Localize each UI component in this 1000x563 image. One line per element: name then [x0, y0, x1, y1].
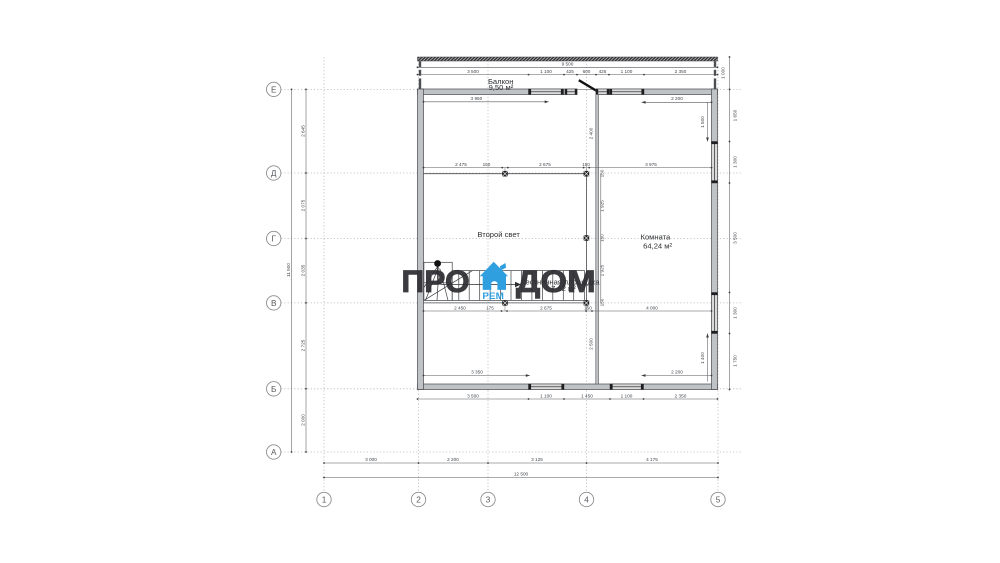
- svg-text:150: 150: [600, 234, 605, 242]
- svg-text:2 350: 2 350: [675, 393, 687, 398]
- svg-text:150: 150: [483, 162, 491, 167]
- svg-text:5: 5: [716, 496, 721, 505]
- svg-text:ПРО: ПРО: [401, 263, 469, 299]
- svg-text:А: А: [271, 448, 277, 457]
- svg-text:Г: Г: [271, 235, 276, 244]
- svg-text:425: 425: [599, 69, 607, 74]
- svg-text:1 450: 1 450: [581, 393, 593, 398]
- svg-text:2 725: 2 725: [300, 339, 305, 351]
- svg-text:Е: Е: [271, 85, 277, 94]
- svg-text:2 035: 2 035: [300, 264, 305, 276]
- svg-text:1 100: 1 100: [540, 393, 552, 398]
- svg-text:2 200: 2 200: [671, 96, 683, 101]
- svg-text:2 675: 2 675: [539, 162, 551, 167]
- svg-text:4 175: 4 175: [646, 457, 658, 462]
- svg-text:3 950: 3 950: [471, 96, 483, 101]
- svg-text:1 750: 1 750: [732, 355, 737, 367]
- svg-text:РЕМ: РЕМ: [482, 291, 504, 301]
- svg-text:2 475: 2 475: [455, 162, 467, 167]
- svg-text:Д: Д: [271, 169, 277, 178]
- svg-text:1 650: 1 650: [732, 109, 737, 121]
- svg-text:Комната: Комната: [641, 233, 672, 242]
- svg-text:2 000: 2 000: [300, 414, 305, 426]
- svg-text:3 500: 3 500: [467, 393, 479, 398]
- svg-text:11 500: 11 500: [286, 263, 291, 277]
- svg-text:1 000: 1 000: [720, 67, 725, 79]
- svg-text:Б: Б: [271, 385, 276, 394]
- svg-text:2 200: 2 200: [671, 370, 683, 375]
- svg-text:600: 600: [583, 69, 591, 74]
- svg-text:2: 2: [416, 496, 421, 505]
- svg-text:2 675: 2 675: [540, 305, 552, 310]
- svg-text:Второй свет: Второй свет: [477, 230, 520, 239]
- svg-text:175: 175: [486, 305, 494, 310]
- svg-text:2 500: 2 500: [588, 338, 593, 350]
- svg-text:2 200: 2 200: [447, 457, 459, 462]
- svg-text:4: 4: [584, 496, 589, 505]
- svg-text:2 075: 2 075: [300, 199, 305, 211]
- svg-text:1 100: 1 100: [540, 69, 552, 74]
- svg-text:3 350: 3 350: [471, 370, 483, 375]
- svg-text:1 100: 1 100: [621, 69, 633, 74]
- svg-text:ДОМ: ДОМ: [516, 263, 596, 299]
- svg-text:3 500: 3 500: [732, 232, 737, 244]
- svg-text:1 300: 1 300: [732, 156, 737, 168]
- svg-text:1 300: 1 300: [732, 307, 737, 319]
- svg-text:3: 3: [486, 496, 491, 505]
- svg-text:150: 150: [600, 298, 605, 306]
- svg-text:64,24 м²: 64,24 м²: [643, 241, 672, 250]
- svg-text:2 450: 2 450: [454, 305, 466, 310]
- svg-text:150: 150: [600, 169, 605, 177]
- svg-text:9,50 м²: 9,50 м²: [489, 83, 514, 92]
- svg-text:4 000: 4 000: [646, 305, 658, 310]
- svg-text:1 500: 1 500: [700, 116, 705, 128]
- svg-text:1 925: 1 925: [600, 264, 605, 276]
- svg-text:150: 150: [584, 305, 592, 310]
- svg-text:2 350: 2 350: [675, 69, 687, 74]
- svg-text:В: В: [271, 299, 277, 308]
- svg-text:3 125: 3 125: [531, 457, 543, 462]
- svg-text:150: 150: [582, 162, 590, 167]
- svg-text:3 975: 3 975: [645, 162, 657, 167]
- svg-text:2 645: 2 645: [300, 125, 305, 137]
- svg-text:9 500: 9 500: [562, 61, 574, 66]
- svg-text:1 100: 1 100: [621, 393, 633, 398]
- svg-text:1 400: 1 400: [700, 352, 705, 364]
- svg-text:1: 1: [322, 496, 327, 505]
- svg-text:1 925: 1 925: [600, 200, 605, 212]
- svg-text:12 500: 12 500: [514, 472, 529, 477]
- svg-text:425: 425: [566, 69, 574, 74]
- svg-text:3 000: 3 000: [365, 457, 377, 462]
- svg-text:2 400: 2 400: [588, 127, 593, 139]
- svg-text:3 500: 3 500: [467, 69, 479, 74]
